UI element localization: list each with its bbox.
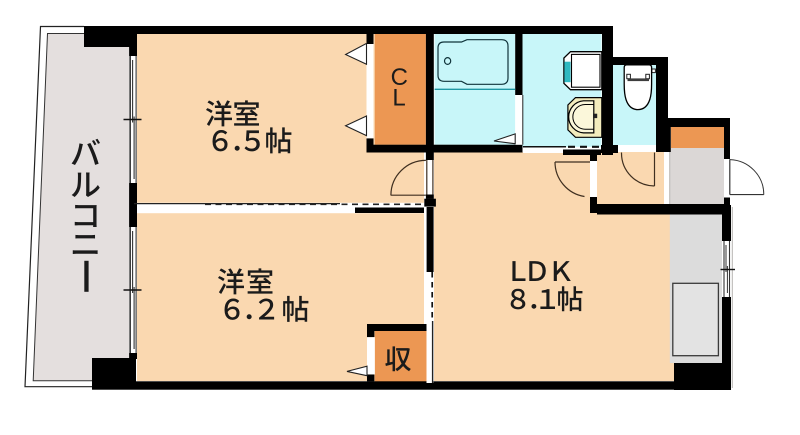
svg-text:L: L <box>392 85 405 112</box>
